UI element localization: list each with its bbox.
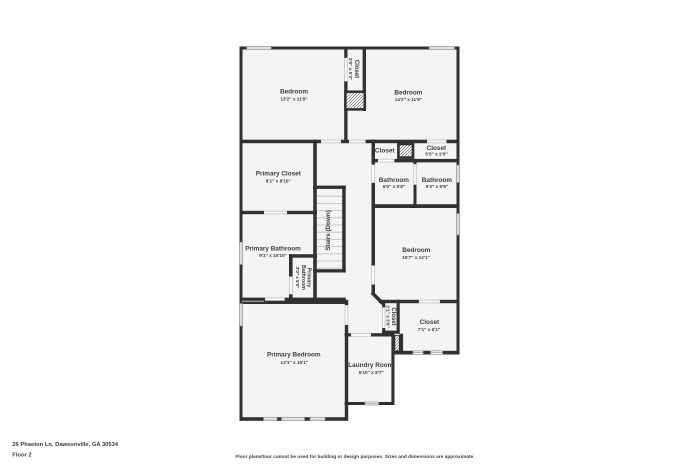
svg-text:Bedroom: Bedroom xyxy=(402,247,430,254)
svg-text:9′1″ x 8′10″: 9′1″ x 8′10″ xyxy=(266,179,292,184)
svg-text:Bedroom: Bedroom xyxy=(280,88,308,95)
svg-text:10′7″ x 12′1″: 10′7″ x 12′1″ xyxy=(402,255,430,260)
svg-text:3′0″ x 5′5″: 3′0″ x 5′5″ xyxy=(295,267,300,289)
svg-text:5′3″ x 2′0″: 5′3″ x 2′0″ xyxy=(425,152,448,157)
svg-text:13′1″ x 15′1″: 13′1″ x 15′1″ xyxy=(281,360,309,365)
svg-text:Laundry Room: Laundry Room xyxy=(348,362,393,369)
svg-text:Closet: Closet xyxy=(375,148,395,155)
svg-text:2′0″ x 5′3″: 2′0″ x 5′3″ xyxy=(348,58,353,81)
svg-text:13′2″ x 11′9″: 13′2″ x 11′9″ xyxy=(280,96,308,101)
svg-text:5′3″ x 5′8″: 5′3″ x 5′8″ xyxy=(426,184,449,189)
svg-text:14′2″ x 11′9″: 14′2″ x 11′9″ xyxy=(395,97,423,102)
svg-text:Floor plans/tour cannot be use: Floor plans/tour cannot be used for buil… xyxy=(235,454,474,460)
svg-text:Floor 2: Floor 2 xyxy=(12,453,31,459)
svg-text:7′1″ x 6′1″: 7′1″ x 6′1″ xyxy=(418,327,441,332)
svg-text:Closet: Closet xyxy=(420,319,440,326)
svg-text:Bathroom: Bathroom xyxy=(300,265,306,290)
svg-text:Primary Bathroom: Primary Bathroom xyxy=(245,246,301,253)
svg-text:5′0″ x 5′8″: 5′0″ x 5′8″ xyxy=(383,184,406,189)
svg-text:2′1″ x 3′9″: 2′1″ x 3′9″ xyxy=(385,305,390,328)
svg-text:Bedroom: Bedroom xyxy=(394,90,422,97)
svg-text:Closet: Closet xyxy=(353,60,359,78)
svg-text:9′1″ x 10′10″: 9′1″ x 10′10″ xyxy=(259,253,287,258)
svg-text:Stairs (Down): Stairs (Down) xyxy=(325,210,332,251)
svg-text:26 Phaeton Ln, Dawsonville, GA: 26 Phaeton Ln, Dawsonville, GA 30534 xyxy=(12,442,119,448)
svg-text:Primary Closet: Primary Closet xyxy=(256,171,302,178)
svg-text:Primary Bedroom: Primary Bedroom xyxy=(267,352,321,359)
svg-text:5′10″ x 8′7″: 5′10″ x 8′7″ xyxy=(359,370,385,375)
